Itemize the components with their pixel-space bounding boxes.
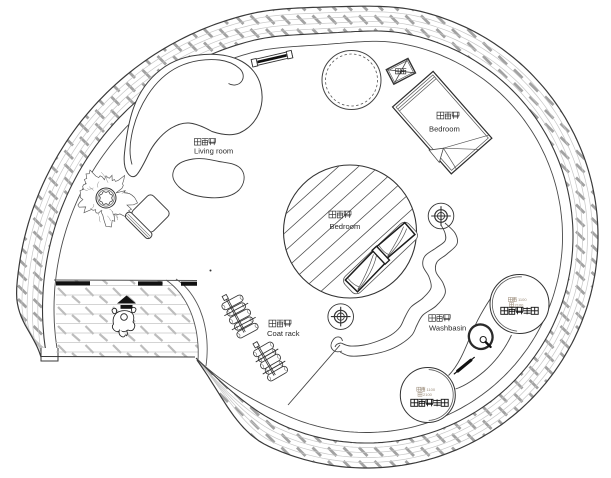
svg-text:Bedroom: Bedroom [429, 125, 460, 134]
svg-text:Coat rack: Coat rack [267, 329, 300, 338]
svg-text:2100: 2100 [423, 392, 433, 397]
svg-text:Living room: Living room [194, 147, 233, 156]
svg-text:Bedroom: Bedroom [330, 222, 361, 231]
svg-text:Washbasin: Washbasin [429, 324, 466, 333]
svg-text:2100: 2100 [515, 302, 525, 307]
